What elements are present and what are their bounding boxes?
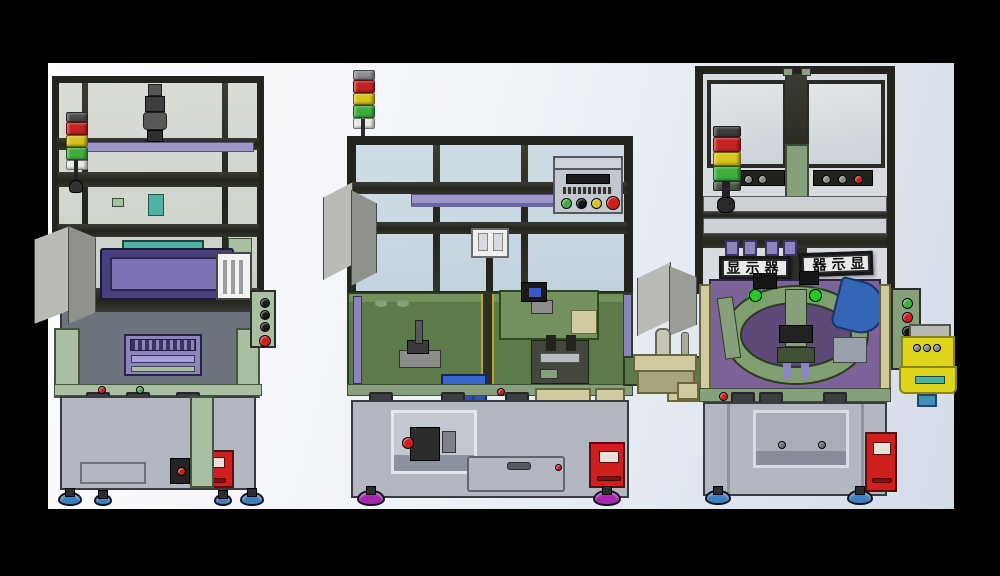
unit-body [901,336,955,370]
connector-row [813,170,873,186]
door-panel [34,226,70,324]
stop-button [902,312,913,323]
camera-unit [753,273,777,289]
frl-filter [442,431,456,453]
stack-light-cap [66,112,88,122]
stack-light-red [353,80,375,93]
green-lamp [749,289,762,302]
sensor-block [148,194,164,216]
gripper-block [779,325,813,343]
leveling-foot [94,494,112,506]
fixture-pad [540,369,558,379]
render-viewport: 显示器 显示器 [48,63,954,509]
small-module [112,198,124,207]
sensor-finger [783,363,791,379]
bracket-post [486,258,493,292]
frame-mullion [521,145,528,291]
panel-slot [223,260,227,294]
recessed-panel [753,410,849,468]
rotary-zone [709,279,881,391]
door-panel [323,182,353,280]
push-button [576,198,587,209]
frame-mullion [433,145,440,291]
screw [818,441,826,449]
indicator-lamp-green [136,386,144,394]
cad-render-canvas: 显示器 显示器 [0,0,1000,576]
indicator-lamp-red [719,392,728,401]
connector [838,175,847,184]
sign-text-mirrored: 显示器 [804,256,868,272]
sensor-finger [801,363,809,379]
panel-lid [555,158,621,170]
purple-clip [725,240,739,256]
slide-plate [540,353,580,363]
stack-light-yellow [353,93,375,105]
open-door [34,226,96,324]
panel-slot [239,260,243,294]
stack-light-cap [713,126,741,137]
drawer-handle [872,478,892,483]
stack-light-mount [69,180,83,193]
cabinet-seam [861,404,864,494]
top-clip [801,68,811,76]
stack-light-mount [717,197,735,213]
yellow-side-unit [899,324,959,412]
machine-left-station [52,76,264,508]
machine-middle-station [345,70,635,508]
connector [854,175,863,184]
panel-slot [231,260,235,294]
gripper [566,335,576,351]
bracket-tab [478,233,488,251]
drawer-label [873,442,891,455]
cabinet-seam [727,404,730,494]
base-cabinet [351,400,629,498]
camera-unit [521,282,547,302]
stack-light-green [353,105,375,118]
device-knob [177,467,186,476]
stack-light-yellow [66,135,88,147]
frl-knob [402,437,414,449]
machine-right-station: 显示器 显示器 [695,66,957,508]
leveling-foot [214,494,232,506]
base-cabinet [703,402,887,496]
door-panel [68,226,96,324]
pallet-tray [124,334,202,376]
press-cylinder [143,112,167,130]
stack-light-red [713,137,741,152]
purple-clip [743,240,757,256]
red-drawer-box [589,442,625,488]
gripper [546,335,556,351]
sensor-strip [353,296,362,384]
door-panel [351,190,377,286]
indicator-lamp-red [98,386,106,394]
terminal-row [563,187,613,194]
open-door [323,182,377,280]
stack-light-green [66,147,88,160]
work-table [347,292,633,392]
base-cabinet [60,396,256,490]
leveling-foot [847,490,873,505]
leveling-foot [357,490,385,506]
press-unit-top [148,84,162,96]
press-unit-body [145,96,165,112]
assembly-fixture [531,340,589,384]
fixture-base [777,347,815,363]
bracket-tab [493,233,503,251]
center-fixture [775,289,819,377]
leveling-foot [240,492,264,506]
push-button [260,322,270,332]
teal-strip [915,376,945,384]
table-hole [397,300,409,307]
screw [778,441,786,449]
connector [822,175,831,184]
tray-rail [131,366,195,372]
vent [933,344,941,352]
press-nozzle [147,130,163,142]
connector [744,175,753,184]
stack-light-pole [74,160,78,182]
gray-module [833,337,867,363]
top-clip [783,68,793,76]
stack-light-green [713,166,741,181]
vent [923,344,931,352]
drawer-front [80,462,146,484]
stack-light-cap [353,70,375,80]
push-button-box [250,290,276,348]
panel-handle [507,462,531,470]
purple-clip [783,240,797,256]
unit-foot [917,394,937,407]
slotted-panel [216,252,252,300]
tray-bar [131,355,195,363]
purple-clip [765,240,779,256]
door-panel [669,266,697,336]
device-box [170,458,190,484]
utility-recess [391,410,477,474]
frame-rail [57,172,259,187]
glass-window [805,80,885,168]
gray-block [531,300,553,314]
reset-button [591,198,602,209]
tan-strip [879,284,891,392]
leveling-foot [705,490,731,505]
led-light-bar [411,194,573,207]
push-button [260,298,270,308]
beam-band [703,218,887,234]
camera-lens [529,288,541,297]
open-door [637,262,697,336]
display-slot [566,174,610,184]
green-column [190,396,214,488]
indicator-lamp-red [497,388,505,396]
door-panel [637,262,671,336]
leveling-foot [593,490,621,506]
vent [913,344,921,352]
led-light-bar [76,142,254,152]
tray-teeth-row [130,339,196,351]
tan-strip [699,284,711,392]
unit-tray [899,366,957,394]
table-hole [375,300,387,307]
push-button [260,310,270,320]
drawer-label [599,451,619,463]
stack-light-red [66,122,88,135]
start-button [902,298,913,309]
raised-platform [499,290,599,340]
tan-block [571,310,597,334]
monitor-screen [110,257,224,291]
leveling-foot [58,492,82,506]
hanging-bracket [471,228,509,258]
stack-light-yellow [713,152,741,166]
fixture-cylinder [415,320,423,344]
hmi-monitor [100,248,234,300]
start-button [561,198,572,209]
press-fixture [399,332,441,368]
shelf-bracket [677,382,699,400]
camera-unit [799,271,819,285]
red-drawer-box [865,432,897,492]
connector [758,175,767,184]
control-panel-box [553,156,623,214]
emergency-stop-button [606,196,620,210]
drawer-handle [597,476,621,481]
frl-air-unit [410,427,440,461]
indicator-lamp-red [555,464,562,471]
access-panel [467,456,565,492]
emergency-stop-button [259,335,271,347]
